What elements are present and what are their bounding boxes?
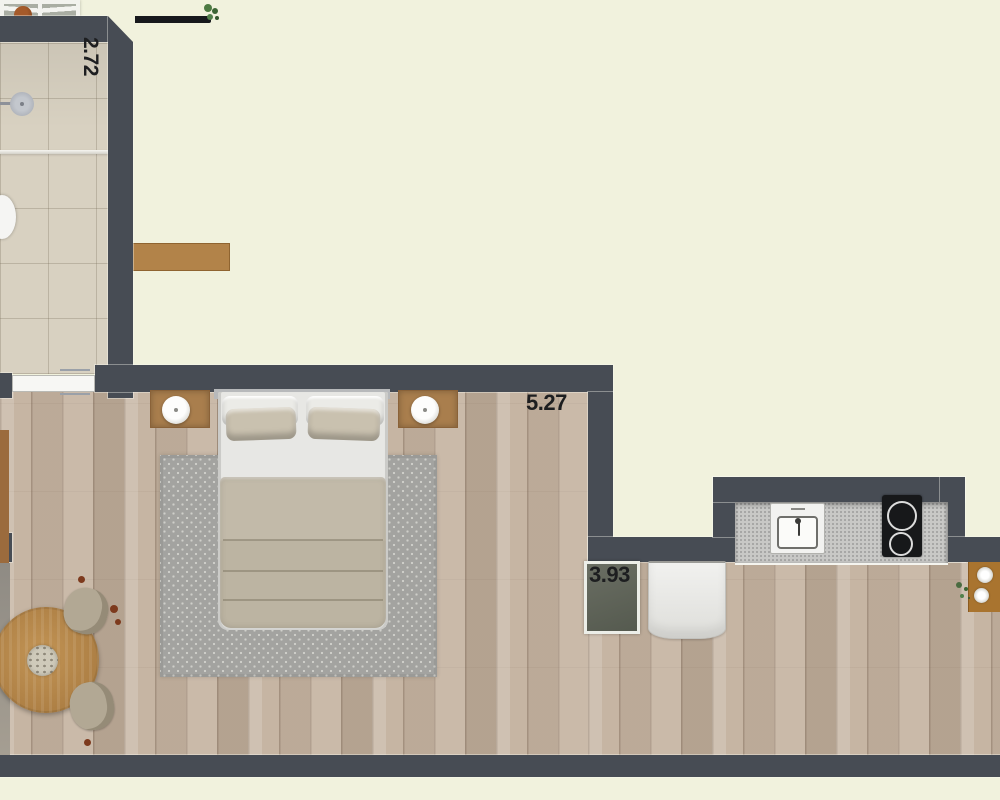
wall-bathroom-right xyxy=(108,16,133,398)
decor-dot xyxy=(115,619,121,625)
lamp-finial xyxy=(423,408,427,412)
floor-plan: 2.72 5.27 3.93 xyxy=(0,0,1000,800)
duvet-crease xyxy=(223,570,383,572)
decor-dot xyxy=(78,576,85,583)
lamp-left xyxy=(162,396,190,424)
table-centerpiece xyxy=(27,645,58,676)
wall-bedroom-top xyxy=(95,365,613,392)
plant xyxy=(204,4,212,12)
toilet xyxy=(0,195,16,239)
side-table xyxy=(968,562,1000,612)
plate xyxy=(977,567,993,583)
pillow-beige-left xyxy=(225,407,296,441)
faucet-spout xyxy=(798,523,800,536)
wall-stub-left-upper xyxy=(0,373,12,398)
bathroom-door xyxy=(12,375,95,392)
wall-bottom xyxy=(0,755,1000,777)
plate xyxy=(974,588,989,603)
decor-dot xyxy=(110,605,118,613)
door-hinge-mark-bottom xyxy=(60,393,90,395)
door-hinge-mark-top xyxy=(60,369,90,371)
lamp-finial xyxy=(174,408,178,412)
dimension-label-wardrobe: 5.27 xyxy=(526,392,567,414)
wall-mid-horizontal xyxy=(588,537,740,562)
wall-kitchen-bottom-right xyxy=(940,537,1000,562)
duvet-crease xyxy=(223,599,383,601)
burner-large xyxy=(887,501,917,531)
pillow-beige-right xyxy=(307,407,380,441)
duvet-crease xyxy=(223,539,383,541)
plant-sprig xyxy=(956,582,962,588)
wall-kitchen-top xyxy=(713,477,965,502)
shower-glass-partition xyxy=(0,150,110,154)
burner-small xyxy=(889,532,913,556)
open-door-leaf xyxy=(0,430,9,563)
kitchen-sink xyxy=(770,503,825,554)
lamp-right xyxy=(411,396,439,424)
shower-head-icon xyxy=(10,92,34,116)
faucet-handle xyxy=(791,508,805,510)
refrigerator xyxy=(648,561,726,639)
decor-dot xyxy=(84,739,91,746)
shower-nozzle xyxy=(20,102,24,106)
dimension-label-kitchen: 3.93 xyxy=(589,564,630,586)
dimension-label-bathroom: 2.72 xyxy=(80,37,101,99)
cooktop xyxy=(882,495,922,557)
bed-duvet xyxy=(220,477,386,628)
